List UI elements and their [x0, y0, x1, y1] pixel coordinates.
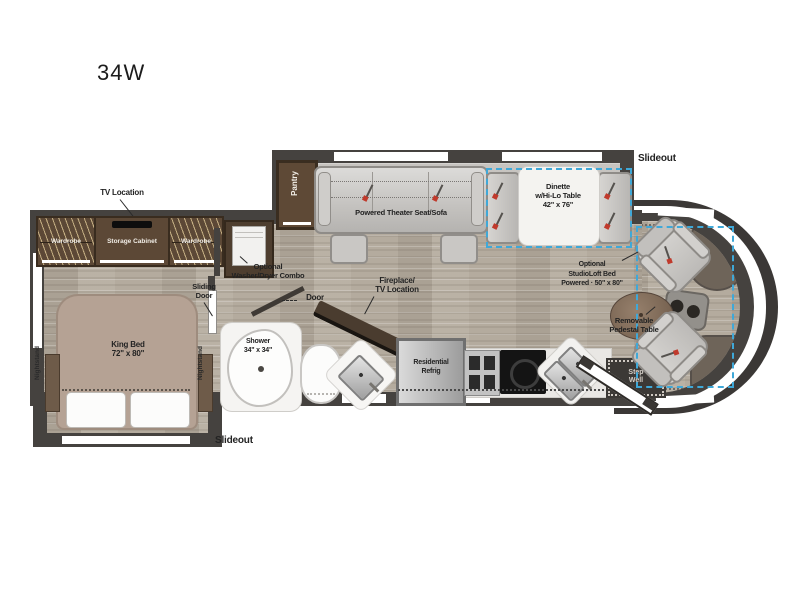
sliding-door-label: Sliding Door: [176, 282, 232, 300]
studioloft-optional-outline: [636, 226, 734, 388]
storage-cabinet: Storage Cabinet: [94, 216, 170, 267]
counter-front-line: [398, 389, 608, 391]
pillow: [130, 392, 190, 428]
sofa-cushion-line: [331, 181, 471, 182]
burner: [469, 375, 480, 389]
studioloft-label: Optional StudioLoft Bed Powered · 50" x …: [544, 260, 640, 289]
induction-ring: [510, 359, 540, 389]
storage-cabinet-label: Storage Cabinet: [96, 238, 168, 246]
wardrobe-label: Wardrobe: [38, 238, 94, 246]
refrigerator-label: Residential Refrig: [399, 359, 463, 376]
wardrobe-left: Wardrobe: [36, 216, 96, 267]
washer-drum: [232, 226, 266, 266]
nightstand-left-label: Nightstand: [34, 346, 41, 380]
window: [334, 152, 448, 161]
pantry: Pantry: [276, 160, 318, 230]
sofa-cushion-line: [331, 197, 471, 198]
bed-fold-line: [62, 389, 190, 391]
theater-sofa: Powered Theater Seat/Sofa: [314, 166, 488, 234]
pantry-label: Pantry: [290, 171, 299, 196]
floorplan-canvas: 34W Wardrobe Storage Cabinet Wardrobe: [0, 0, 800, 600]
door-label: Door: [298, 293, 332, 302]
shower-label: Shower 34" x 34": [226, 338, 290, 355]
model-title: 34W: [97, 60, 145, 86]
fireplace-label: Fireplace/ TV Location: [358, 276, 436, 294]
sofa-armrest: [318, 172, 331, 226]
pedestal-table-label: Removable Pedestal Table: [578, 316, 690, 334]
washer-line: [235, 237, 263, 238]
shower-head: [258, 366, 264, 372]
dinette-optional-outline: [486, 168, 632, 248]
burner: [484, 375, 495, 389]
sofa-footrest: [440, 234, 478, 264]
pillow: [66, 392, 126, 428]
burner: [469, 356, 480, 370]
window: [33, 253, 42, 348]
toilet-seat-line: [307, 393, 335, 395]
tv-bar: [112, 221, 152, 228]
sofa-footrest: [330, 234, 368, 264]
slideout-top-label: Slideout: [638, 154, 676, 163]
theater-sofa-label: Powered Theater Seat/Sofa: [316, 208, 486, 217]
window: [502, 152, 602, 161]
window: [62, 436, 190, 444]
nightstand-right-label: Nightstand: [197, 346, 204, 380]
burner: [484, 356, 495, 370]
slideout-bottom-label: Slideout: [215, 436, 253, 445]
refrigerator: Residential Refrig: [396, 338, 466, 406]
nightstand-left: [45, 354, 60, 412]
door-leader: [282, 300, 297, 301]
king-bed-label: King Bed 72" x 80": [88, 340, 168, 358]
bath-wall: [214, 228, 220, 276]
washer-line: [235, 232, 263, 233]
vanity-sink: [337, 354, 385, 402]
tv-location-label: TV Location: [82, 188, 162, 197]
sofa-armrest: [471, 172, 484, 226]
